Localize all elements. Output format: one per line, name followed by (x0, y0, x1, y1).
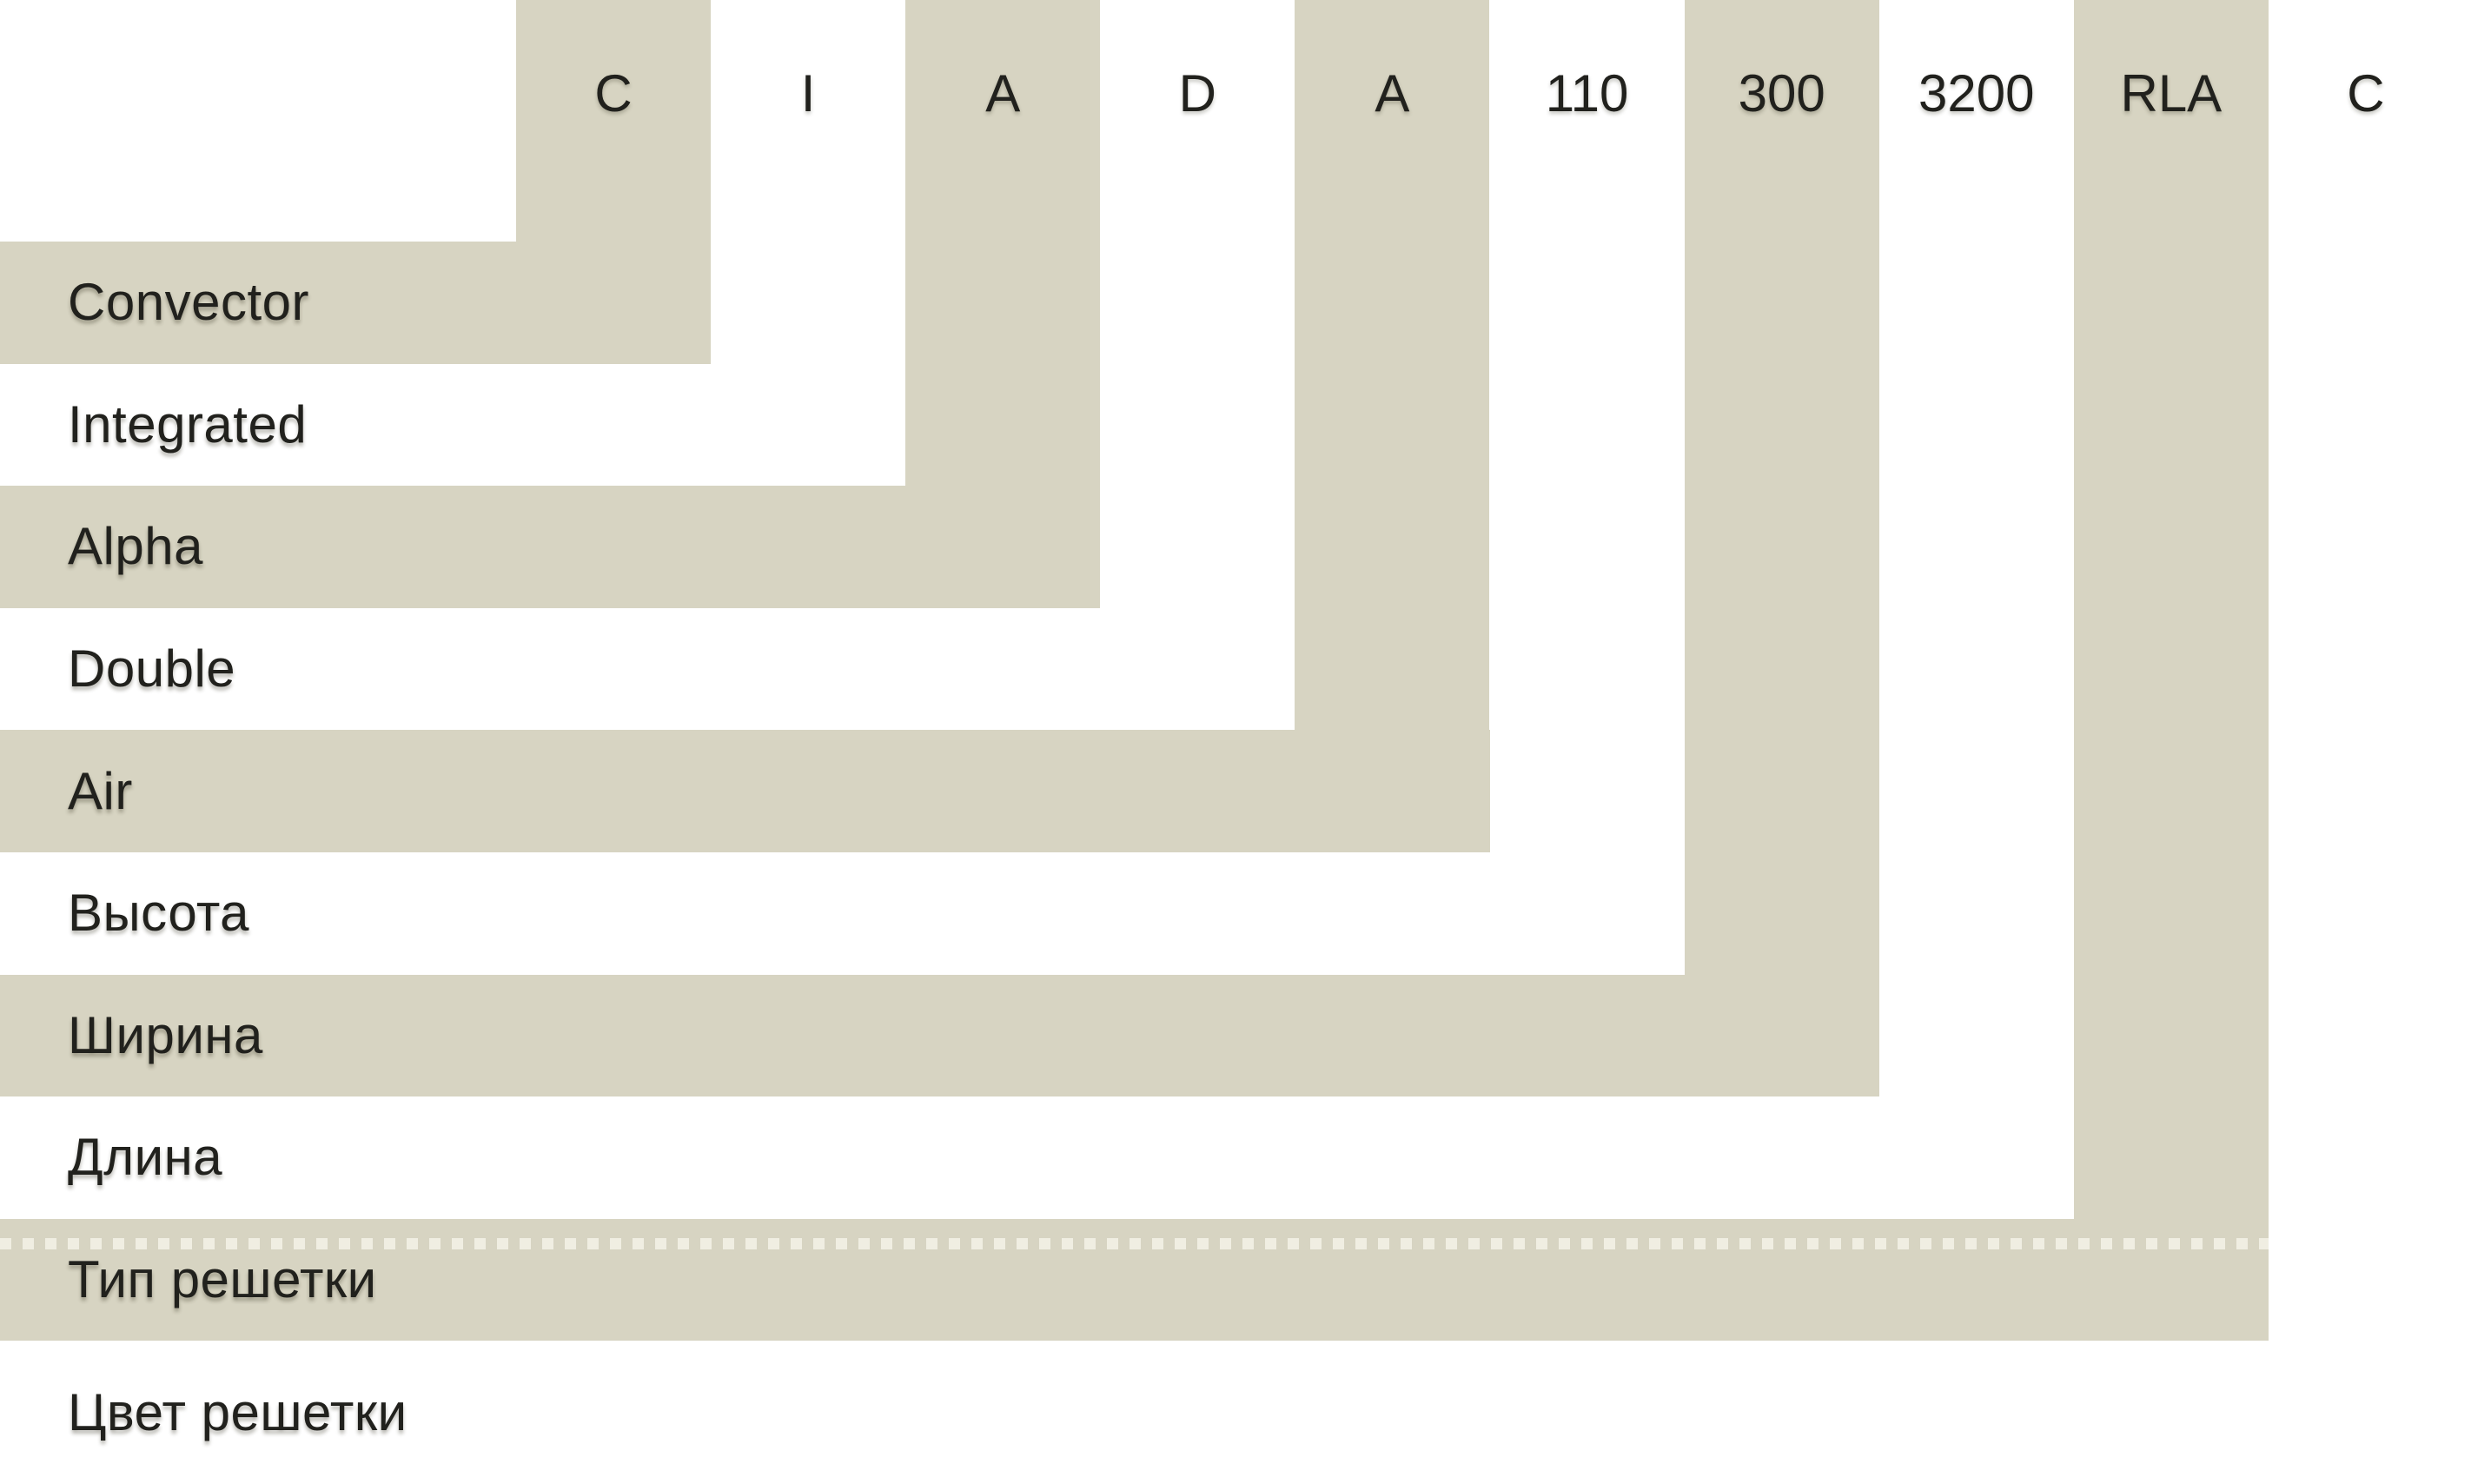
row-band: Цвет решетки (0, 1341, 2463, 1484)
code-value: D (1100, 0, 1295, 188)
code-value: I (711, 0, 905, 188)
row-label: Тип решетки (0, 1254, 377, 1306)
nomenclature-diagram: ConvectorIntegratedAlphaDoubleAirВысотаШ… (0, 0, 2471, 1484)
row-label: Alpha (0, 520, 203, 573)
code-value: C (2269, 0, 2463, 188)
row-label: Convector (0, 276, 309, 328)
code-column (2074, 0, 2269, 1341)
row-band: Double (0, 608, 1295, 731)
code-value: C (516, 0, 711, 188)
row-label: Double (0, 643, 235, 695)
row-band: Convector (0, 242, 711, 364)
row-band: Ширина (0, 975, 1879, 1097)
code-value: A (1295, 0, 1489, 188)
row-band: Integrated (0, 364, 905, 487)
row-band: Высота (0, 852, 1685, 975)
code-value: 110 (1490, 0, 1685, 188)
row-label: Ширина (0, 1010, 263, 1062)
row-label: Цвет решетки (0, 1387, 407, 1439)
dotted-divider-line (0, 1238, 2269, 1249)
code-value: 3200 (1879, 0, 2074, 188)
row-label: Длина (0, 1131, 222, 1183)
row-label: Integrated (0, 399, 307, 451)
code-value: A (905, 0, 1100, 188)
row-label: Air (0, 765, 133, 818)
code-value: RLA (2074, 0, 2269, 188)
code-value: 300 (1685, 0, 1879, 188)
row-band: Air (0, 730, 1490, 852)
code-column (2269, 0, 2463, 1484)
row-band: Длина (0, 1096, 2074, 1219)
row-band: Alpha (0, 486, 1100, 608)
row-label: Высота (0, 887, 249, 939)
